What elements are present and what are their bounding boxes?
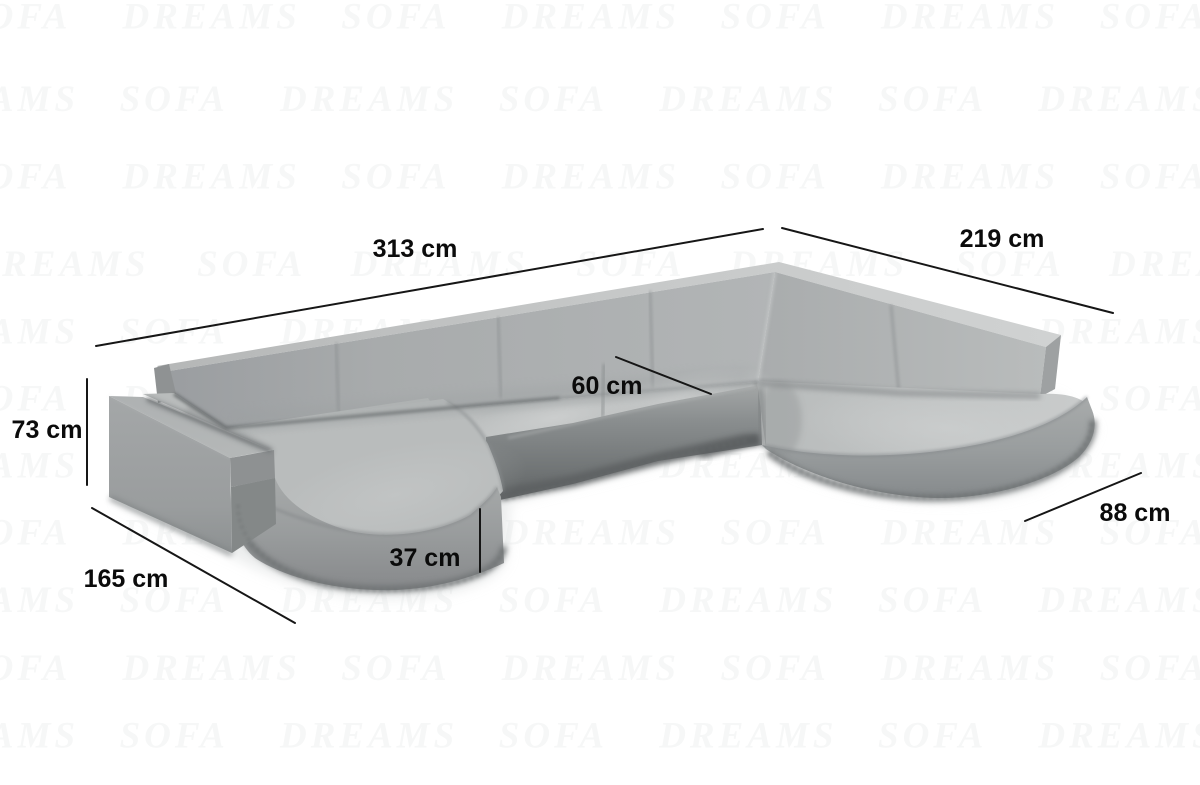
svg-text:60 cm: 60 cm: [572, 372, 643, 400]
svg-text:313 cm: 313 cm: [373, 235, 458, 263]
svg-text:37 cm: 37 cm: [390, 544, 461, 572]
svg-text:SOFADREAMSSOFADREAMSSOFADREAMS: SOFADREAMSSOFADREAMSSOFADREAMSSOFA: [0, 157, 1200, 198]
svg-text:SOFADREAMSSOFADREAMSSOFADREAMS: SOFADREAMSSOFADREAMSSOFADREAMSSOFA: [0, 648, 1200, 689]
svg-text:73 cm: 73 cm: [12, 416, 83, 444]
svg-text:165 cm: 165 cm: [84, 565, 169, 593]
svg-text:88 cm: 88 cm: [1100, 499, 1171, 527]
svg-text:219 cm: 219 cm: [960, 225, 1045, 253]
svg-text:SOFADREAMSSOFADREAMSSOFADREAMS: SOFADREAMSSOFADREAMSSOFADREAMSSOFA: [0, 0, 1200, 38]
